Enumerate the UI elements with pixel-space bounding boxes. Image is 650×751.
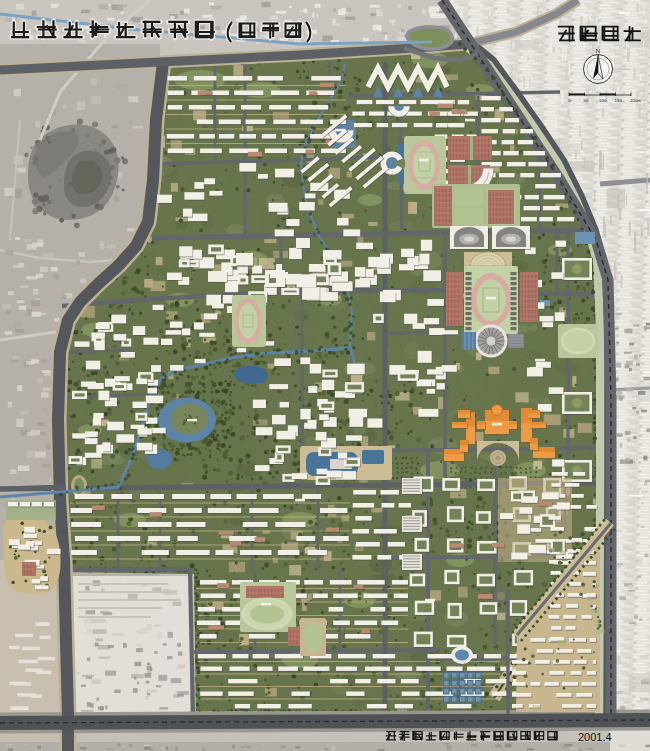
svg-text:50: 50 (584, 98, 589, 103)
svg-text:2001.4: 2001.4 (578, 731, 612, 743)
svg-text:N: N (596, 48, 600, 54)
svg-text:200m: 200m (630, 98, 641, 103)
svg-text:100: 100 (599, 98, 607, 103)
svg-text:150: 150 (615, 98, 623, 103)
